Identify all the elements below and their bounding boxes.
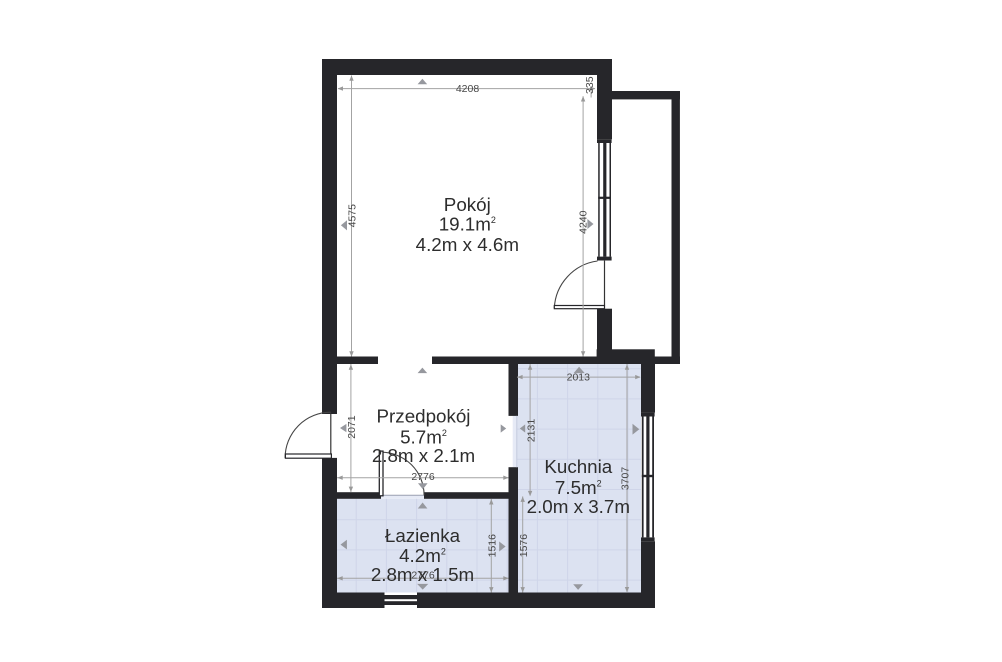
svg-text:19.1m2: 19.1m2 [439,213,496,234]
svg-text:4240: 4240 [577,210,589,234]
svg-text:5.7m2: 5.7m2 [400,426,447,447]
svg-text:2.8m x 2.1m: 2.8m x 2.1m [372,445,475,466]
svg-text:1576: 1576 [518,534,530,558]
svg-text:Łazienka: Łazienka [385,525,461,546]
svg-text:2013: 2013 [567,372,591,384]
svg-text:1516: 1516 [487,534,499,558]
svg-text:2131: 2131 [525,419,537,443]
svg-text:2071: 2071 [346,415,358,439]
svg-text:Kuchnia: Kuchnia [544,456,612,477]
svg-text:2.0m x 3.7m: 2.0m x 3.7m [527,496,630,517]
svg-text:4.2m x 4.6m: 4.2m x 4.6m [416,234,519,255]
svg-text:4208: 4208 [456,83,480,95]
svg-text:2776: 2776 [411,471,435,483]
svg-text:Pokój: Pokój [444,194,491,215]
svg-text:3707: 3707 [620,467,632,491]
svg-text:2776: 2776 [411,570,435,582]
svg-text:Przedpokój: Przedpokój [377,405,471,426]
svg-text:335: 335 [584,76,596,94]
svg-text:4575: 4575 [347,204,359,228]
